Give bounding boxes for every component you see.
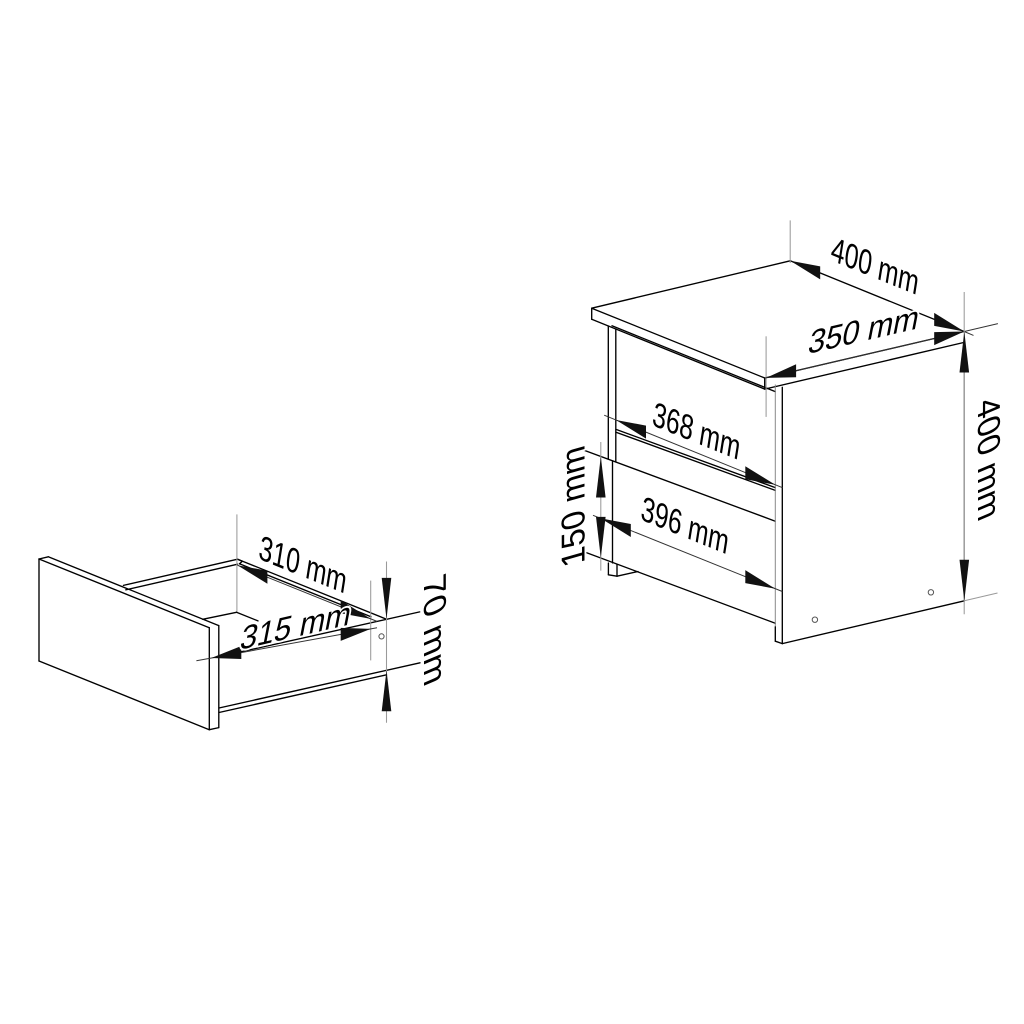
svg-text:400 mm: 400 mm [971,391,1006,526]
svg-text:70 mm: 70 mm [417,569,452,691]
svg-text:150 mm: 150 mm [556,442,593,571]
